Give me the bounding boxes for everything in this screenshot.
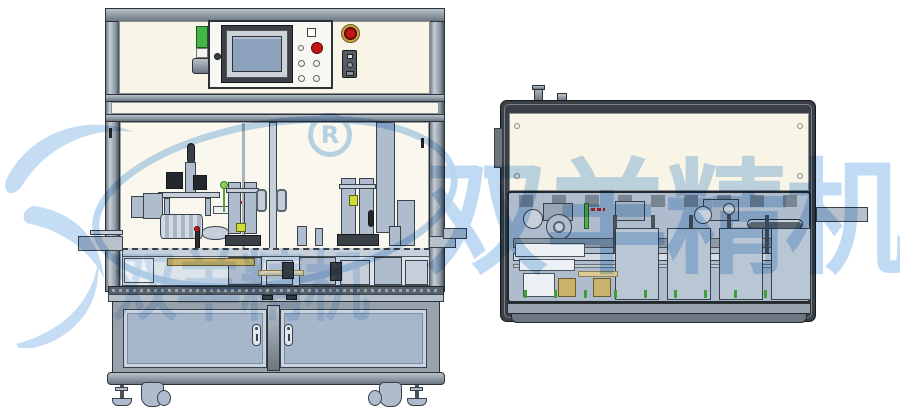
module-white-1 xyxy=(124,258,154,283)
hmi-touchscreen[interactable] xyxy=(232,36,282,72)
red-push-button[interactable] xyxy=(311,42,323,54)
switch-mark-square xyxy=(347,54,353,59)
white-plate-1 xyxy=(515,243,585,257)
cover-screw-3 xyxy=(797,123,803,129)
module-gray-6 xyxy=(405,260,428,285)
front-cover-panel xyxy=(509,113,809,191)
frame-mid-bar-2 xyxy=(105,114,445,122)
latch-2 xyxy=(286,295,297,300)
door-sensor-dots xyxy=(109,128,112,138)
cabinet-center-stile xyxy=(267,305,280,371)
leveling-foot-right-nut xyxy=(410,387,423,391)
cabinet-door-left[interactable] xyxy=(123,309,267,368)
leveling-foot-left-pad xyxy=(112,398,132,406)
brass-rail xyxy=(167,258,255,266)
conveyor-feed-rail-left xyxy=(78,236,123,251)
latch-1 xyxy=(262,295,273,300)
tower-light xyxy=(196,26,208,48)
hanging-motor-1 xyxy=(282,262,294,279)
conveyor-feed-rail-thin xyxy=(90,230,123,235)
mechanism-bay xyxy=(507,191,811,303)
hanging-motor-2 xyxy=(330,262,342,281)
outfeed-bar-right xyxy=(816,207,868,222)
top-unit-roller-2 xyxy=(723,203,735,215)
camera-box-2 xyxy=(193,175,207,190)
caster-right-wheel xyxy=(368,390,382,406)
handle-dot xyxy=(287,327,290,330)
indicator-small-1 xyxy=(298,45,304,51)
handle-dot xyxy=(255,327,258,330)
tan-strip xyxy=(258,270,304,276)
tan-strip-right xyxy=(578,271,618,277)
pnp1-lime-block xyxy=(236,223,246,232)
button-round-3[interactable] xyxy=(298,75,305,82)
cabinet-door-right[interactable] xyxy=(280,309,427,368)
pnp2-lime-block xyxy=(349,195,358,206)
panel-strip xyxy=(111,102,439,114)
post-a xyxy=(297,226,307,246)
left-machine-front-view xyxy=(0,0,470,410)
lever-black xyxy=(368,210,374,227)
cad-jack-pin xyxy=(223,186,225,212)
button-round-2[interactable] xyxy=(313,60,320,67)
cover-screw-1 xyxy=(514,123,520,129)
pnp2-crossbar xyxy=(339,184,376,189)
leveling-foot-right-pad xyxy=(407,398,427,406)
gripper-rod xyxy=(195,230,200,250)
red-axis-dash xyxy=(591,208,605,211)
leveling-foot-left-nut xyxy=(115,387,128,391)
post-b xyxy=(315,228,323,246)
white-plate-2 xyxy=(519,259,575,271)
pulley-1 xyxy=(523,209,543,229)
switch-mark-bar xyxy=(346,71,354,76)
green-feet-ticks xyxy=(524,290,794,298)
pnp1-base xyxy=(225,235,261,246)
selector-switch[interactable] xyxy=(342,50,357,78)
table-edge-dots xyxy=(112,289,440,292)
cover-hinge-tab xyxy=(494,128,503,168)
infeed-bar-left xyxy=(443,228,467,239)
green-slide-strip xyxy=(584,203,589,229)
sensor-slot-2 xyxy=(276,189,287,212)
caster-left-wheel xyxy=(157,390,171,406)
cover-screw-2 xyxy=(514,173,520,179)
camera-box-1 xyxy=(166,172,183,189)
pulley-2 xyxy=(546,214,572,240)
switch-mark-circle xyxy=(347,62,353,68)
handle-slot xyxy=(288,334,290,341)
right-machine-side-view xyxy=(430,80,900,330)
machine-drawing-canvas: R 双羊精机 双羊精机 xyxy=(0,0,900,410)
sensor-slot-1 xyxy=(256,189,267,212)
inner-panel-right xyxy=(376,122,395,233)
emergency-stop-button[interactable] xyxy=(344,27,357,40)
rotary-handle xyxy=(187,143,195,164)
rotary-post-2 xyxy=(205,198,211,216)
door-handle-right[interactable] xyxy=(284,324,293,346)
pnp2-base xyxy=(337,234,379,246)
cover-screw-4 xyxy=(797,173,803,179)
post-c xyxy=(389,226,401,246)
handle-slot xyxy=(256,334,258,341)
base-skirt xyxy=(511,313,807,323)
button-round-4[interactable] xyxy=(313,75,320,82)
gripper-red-dot xyxy=(194,226,200,232)
module-gray-4 xyxy=(340,260,370,285)
machine-housing xyxy=(500,100,816,322)
caster-right xyxy=(379,382,402,407)
button-round-1[interactable] xyxy=(298,60,305,67)
door-handle-left[interactable] xyxy=(252,324,261,346)
tower-light-base xyxy=(196,48,208,58)
button-square[interactable] xyxy=(307,28,316,37)
frame-mid-bar-1 xyxy=(105,94,445,102)
door-sensor-dots-right xyxy=(421,138,424,148)
module-gray-5 xyxy=(374,257,402,285)
top-fitting-1-cap xyxy=(532,85,545,90)
pnp1-crossbar xyxy=(226,188,259,193)
panel-keyhole xyxy=(214,53,221,60)
